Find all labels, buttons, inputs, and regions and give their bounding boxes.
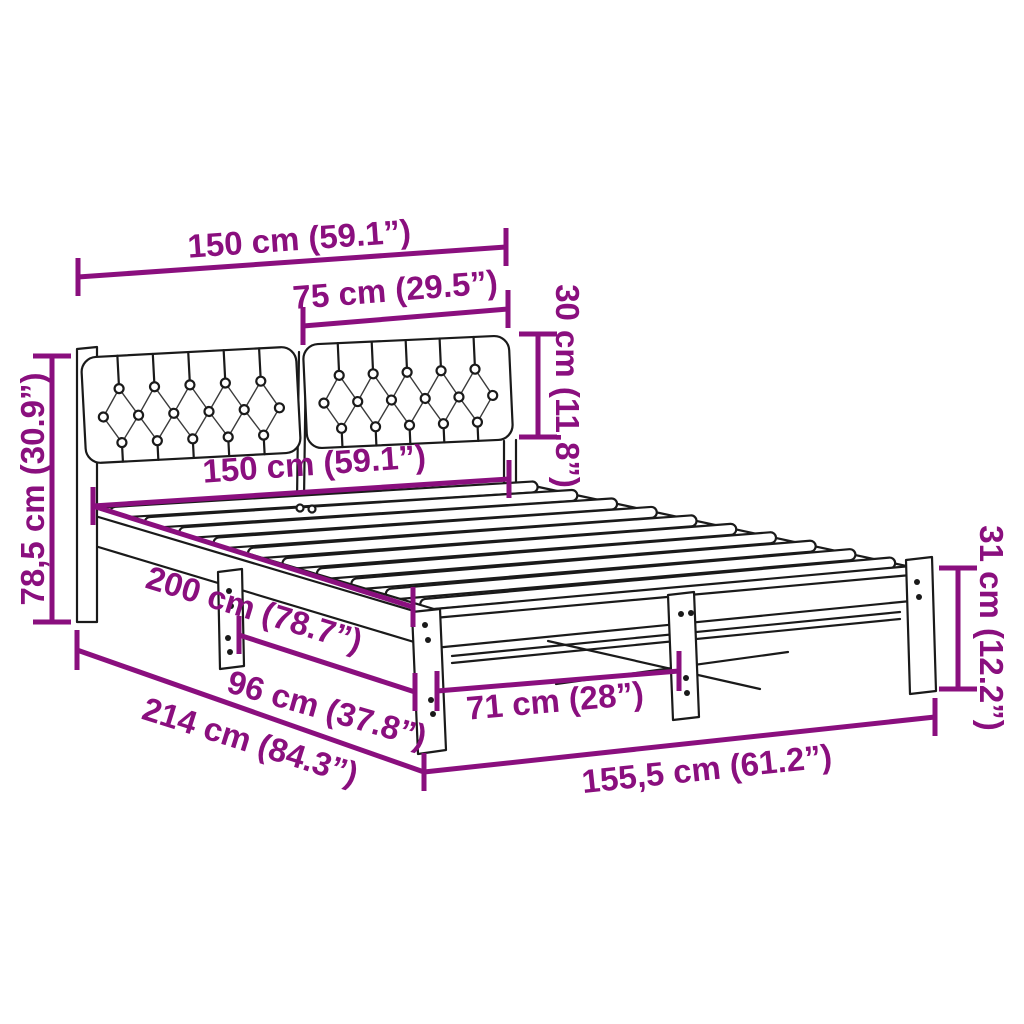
dim-cushion-width: 75 cm (29.5”) [291,263,508,345]
tufted-cushion [81,346,301,463]
product-dimension-diagram: 150 cm (59.1”) 75 cm (29.5”) 30 cm (11.8… [0,0,1024,1024]
headboard-cushions [81,335,513,463]
dim-cushion-height: 30 cm (11.8”) [519,284,586,488]
dim-cushion-width-label: 75 cm (29.5”) [291,263,499,316]
dim-foot-leg-spacing-label: 71 cm (28”) [465,674,645,726]
foot-far-leg [906,557,936,694]
dim-headboard-height-label: 78,5 cm (30.9”) [14,373,51,606]
dim-leg-height: 31 cm (12.2”) [939,525,1010,730]
dim-headboard-height: 78,5 cm (30.9”) [14,356,71,622]
bed-dimension-drawing: 150 cm (59.1”) 75 cm (29.5”) 30 cm (11.8… [0,0,1024,1024]
foot-center-leg [668,592,699,720]
dim-leg-height-label: 31 cm (12.2”) [973,525,1010,730]
tufted-cushion [303,335,514,448]
dim-cushion-height-label: 30 cm (11.8”) [549,284,586,488]
dim-total-width-label: 155,5 cm (61.2”) [580,737,834,800]
